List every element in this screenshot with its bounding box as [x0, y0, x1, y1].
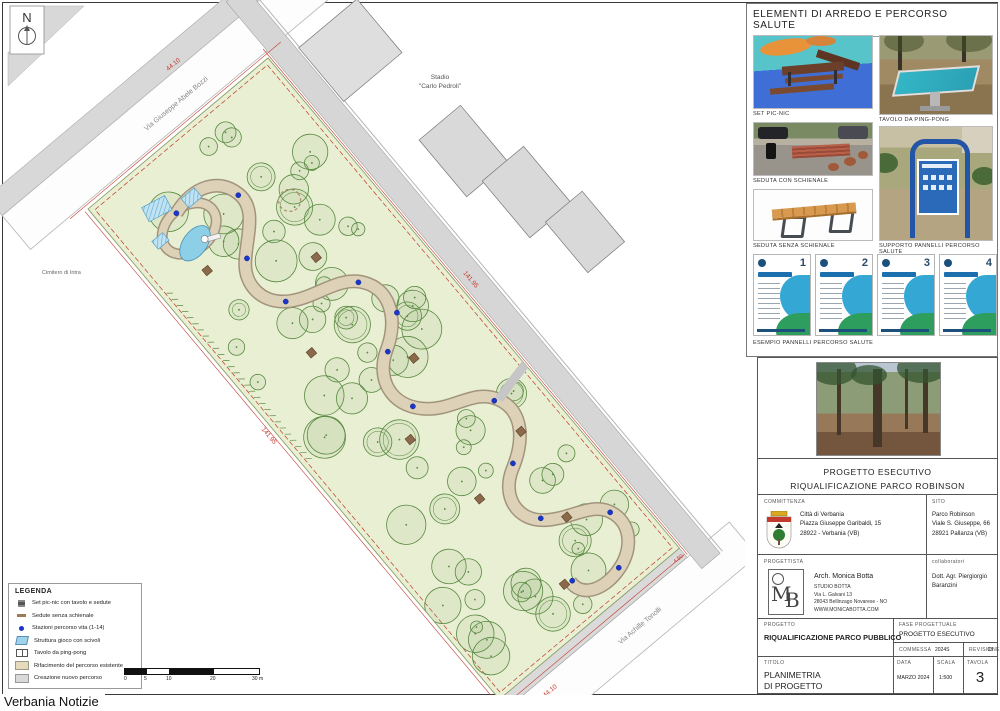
decor: [828, 163, 839, 171]
photo-label-pingpong: TAVOLO DA PING-PONG: [879, 117, 949, 123]
stadio-label-line2: "Carlo Pedroli": [419, 83, 462, 90]
poster-number: 2: [862, 257, 868, 269]
north-label: N: [22, 10, 31, 25]
decor: [759, 35, 813, 58]
legend-item-label: Stazioni percorso vita (1-14): [32, 625, 105, 631]
decor: [947, 185, 952, 190]
sito-label: SITO: [932, 499, 945, 505]
drawing-sheet: Via Giuseppe Abele Bozzi Via Achille Ton…: [0, 0, 1000, 711]
decor: [930, 92, 940, 107]
scale-tick-label: 5: [144, 676, 147, 682]
divider: [926, 555, 927, 619]
decor: [939, 185, 944, 190]
north-arrow: N: [10, 6, 44, 54]
revisione-label: REVISIONE: [969, 647, 1000, 653]
legend-item: Sedute senza schienale: [9, 610, 141, 623]
scale-tick-label: 0: [124, 676, 127, 682]
scale-bar: 05102030 m: [124, 668, 264, 683]
poster-footer-bar: [943, 329, 991, 332]
decor: [758, 127, 788, 139]
decor: [770, 83, 834, 95]
decor: [922, 164, 952, 168]
title-block: PROGETTO ESECUTIVO RIQUALIFICAZIONE PARC…: [757, 357, 998, 694]
site-caption: Verbania Notizie: [2, 694, 105, 709]
scala-value: 1:500: [939, 675, 952, 681]
legend-item-label: Struttura gioco con scivoli: [34, 638, 100, 644]
photo-set-picnic: [753, 35, 873, 109]
tavola-label: TAVOLA: [967, 660, 988, 666]
poster-text-lines: [820, 283, 842, 319]
row-progetto: PROGETTO RIQUALIFICAZIONE PARCO PUBBLICO…: [758, 618, 997, 656]
photo-label-bench-backrest: SEDUTA CON SCHIENALE: [753, 178, 828, 184]
decor: [780, 216, 806, 238]
decor: [858, 151, 868, 159]
fase-label: FASE PROGETTUALE: [899, 622, 957, 628]
poster-green-shape: [962, 313, 997, 336]
poster-header-bar: [758, 272, 792, 277]
decor: [838, 126, 868, 139]
studio-logo: M B: [768, 569, 804, 615]
poster-header-bar: [820, 272, 854, 277]
scale-segment: [169, 669, 214, 674]
decor: [931, 185, 936, 190]
poster-header-bar: [944, 272, 978, 277]
poster-text-lines: [758, 283, 780, 319]
poster-footer-bar: [881, 329, 929, 332]
corner-road-triangle-1: [44, 6, 84, 44]
scale-tick-label: 10: [166, 676, 172, 682]
new-path-swatch: [15, 674, 29, 683]
decor: [828, 211, 854, 233]
stadio-label-line1: Stadio: [431, 74, 450, 81]
legend-item: Set pic-nic con tavolo e sedute: [9, 597, 141, 610]
scale-tick-label: 30 m: [252, 676, 263, 682]
decor: [923, 185, 928, 190]
scale-segment: [147, 669, 169, 674]
row-titolo: TITOLO PLANIMETRIA DI PROGETTO DATA MARZ…: [758, 656, 997, 693]
committenza-label: COMMITTENZA: [764, 499, 805, 505]
poster-footer-bar: [819, 329, 867, 332]
progettista-name: Arch. Monica Botta: [814, 573, 873, 580]
titolo-text: PLANIMETRIA DI PROGETTO: [764, 670, 822, 692]
decor: [939, 175, 944, 180]
park-photo: [816, 362, 941, 456]
photo-bench-no-backrest: [753, 189, 873, 241]
legend-item: Tavolo da ping-pong: [9, 647, 141, 660]
poster-number: 1: [800, 257, 806, 269]
legend-item-label: Rifacimento del percorso esistente: [34, 663, 123, 669]
legend-item: Rifacimento del percorso esistente: [9, 660, 141, 673]
progettista-label: PROGETTISTA: [764, 559, 803, 565]
row-committenza-sito: COMMITTENZA SITO Città di Verbania Piazz…: [758, 494, 997, 554]
coat-of-arms: [766, 511, 792, 549]
decor: [851, 365, 887, 385]
scala-label: SCALA: [937, 660, 955, 666]
poster-header-bar: [882, 272, 916, 277]
poster-text-lines: [944, 283, 966, 319]
decor: [766, 143, 776, 159]
data-label: DATA: [897, 660, 911, 666]
poster-logo-icon: [882, 259, 890, 267]
scale-segment: [125, 669, 147, 674]
corner-road-triangle-2: [8, 52, 44, 86]
scale-bar-segments: [124, 668, 260, 675]
decor: [920, 106, 950, 111]
legend-item-label: Tavolo da ping-pong: [34, 650, 86, 656]
divider: [926, 495, 927, 555]
decor: [884, 35, 924, 52]
decor: [923, 175, 928, 180]
decor: [834, 70, 837, 84]
photo-label-set-picnic: SET PIC-NIC: [753, 111, 789, 117]
poster-text-lines: [882, 283, 904, 319]
decor: [897, 362, 941, 383]
decor: [946, 35, 992, 52]
poster-footer-bar: [757, 329, 805, 332]
commessa-value: 2024S: [935, 647, 949, 653]
poster-logo-icon: [820, 259, 828, 267]
legend-title: LEGENDA: [15, 588, 141, 595]
decor: [879, 153, 898, 173]
legend: LEGENDA Set pic-nic con tavolo e seduteS…: [8, 583, 142, 689]
divider: [933, 657, 934, 694]
poster-logo-icon: [758, 259, 766, 267]
existing-path-swatch: [15, 661, 29, 670]
decor: B: [785, 588, 800, 612]
revisione-value: 03: [987, 647, 993, 653]
scale-bar-ticks: 05102030 m: [124, 675, 264, 683]
collaboratori-label: collaboratori: [932, 559, 964, 565]
committenza-text: Città di Verbania Piazza Giuseppe Gariba…: [800, 511, 881, 539]
progetto-text: RIQUALIFICAZIONE PARCO PUBBLICO: [764, 633, 901, 642]
health-path-poster-3: 3: [877, 254, 935, 336]
tavola-value: 3: [963, 669, 997, 686]
fase-text: PROGETTO ESECUTIVO: [899, 631, 975, 638]
decor: [806, 36, 836, 46]
scale-segment: [214, 669, 259, 674]
poster-number: 3: [924, 257, 930, 269]
health-path-poster-4: 4: [939, 254, 997, 336]
divider: [893, 657, 894, 694]
photo-bench-backrest: [753, 122, 873, 176]
furniture-panel: ELEMENTI DI ARREDO E PERCORSO SALUTE SET…: [746, 3, 998, 357]
photo-label-bench-no-backrest: SEDUTA SENZA SCHIENALE: [753, 243, 835, 249]
legend-item: Stazioni percorso vita (1-14): [9, 622, 141, 635]
decor: [947, 175, 952, 180]
poster-row-label: ESEMPIO PANNELLI PERCORSO SALUTE: [753, 340, 873, 346]
decor: [792, 143, 851, 158]
play-structure-icon: [15, 636, 29, 645]
legend-item: Creazione nuovo percorso: [9, 672, 141, 685]
poster-green-shape: [838, 313, 873, 336]
poster-green-shape: [776, 313, 811, 336]
decor: [917, 159, 959, 215]
progettista-info: STUDIO BOTTA Via L. Galvani 13 28043 Bel…: [814, 584, 887, 614]
poster-number: 4: [986, 257, 992, 269]
pingpong-icon: [16, 649, 28, 657]
sito-text: Parco Robinson Viale S. Giuseppe, 66 289…: [932, 511, 990, 539]
legend-item: Struttura gioco con scivoli: [9, 635, 141, 648]
progetto-label: PROGETTO: [764, 622, 795, 628]
collaboratori-text: Dott. Agr. Piergiorgio Baranzini: [932, 573, 997, 592]
furniture-panel-title: ELEMENTI DI ARREDO E PERCORSO SALUTE: [753, 9, 989, 37]
station-dot-icon: [19, 626, 24, 631]
photo-panel-support: [879, 126, 993, 241]
project-title: PROGETTO ESECUTIVO RIQUALIFICAZIONE PARC…: [758, 458, 997, 494]
titolo-label: TITOLO: [764, 660, 784, 666]
legend-item-label: Sedute senza schienale: [32, 613, 94, 619]
decor: [931, 175, 936, 180]
legend-item-label: Creazione nuovo percorso: [34, 675, 102, 681]
health-path-poster-2: 2: [815, 254, 873, 336]
data-value: MARZO 2024: [897, 675, 929, 681]
legend-items: Set pic-nic con tavolo e seduteSedute se…: [9, 597, 141, 685]
decor: [844, 157, 856, 166]
health-path-poster-1: 1: [753, 254, 811, 336]
decor: [788, 72, 791, 86]
picnic-set-icon: [18, 600, 25, 607]
cimitero-label: Cimitero di Intra: [42, 270, 82, 276]
decor: [972, 167, 993, 185]
bench-icon: [17, 614, 26, 617]
poster-green-shape: [900, 313, 935, 336]
commessa-label: COMMESSA: [899, 647, 931, 653]
poster-logo-icon: [944, 259, 952, 267]
photo-pingpong: [879, 35, 993, 115]
legend-item-label: Set pic-nic con tavolo e sedute: [32, 600, 111, 606]
scale-tick-label: 20: [210, 676, 216, 682]
row-progettista: PROGETTISTA collaboratori M B Arch. Moni…: [758, 554, 997, 618]
